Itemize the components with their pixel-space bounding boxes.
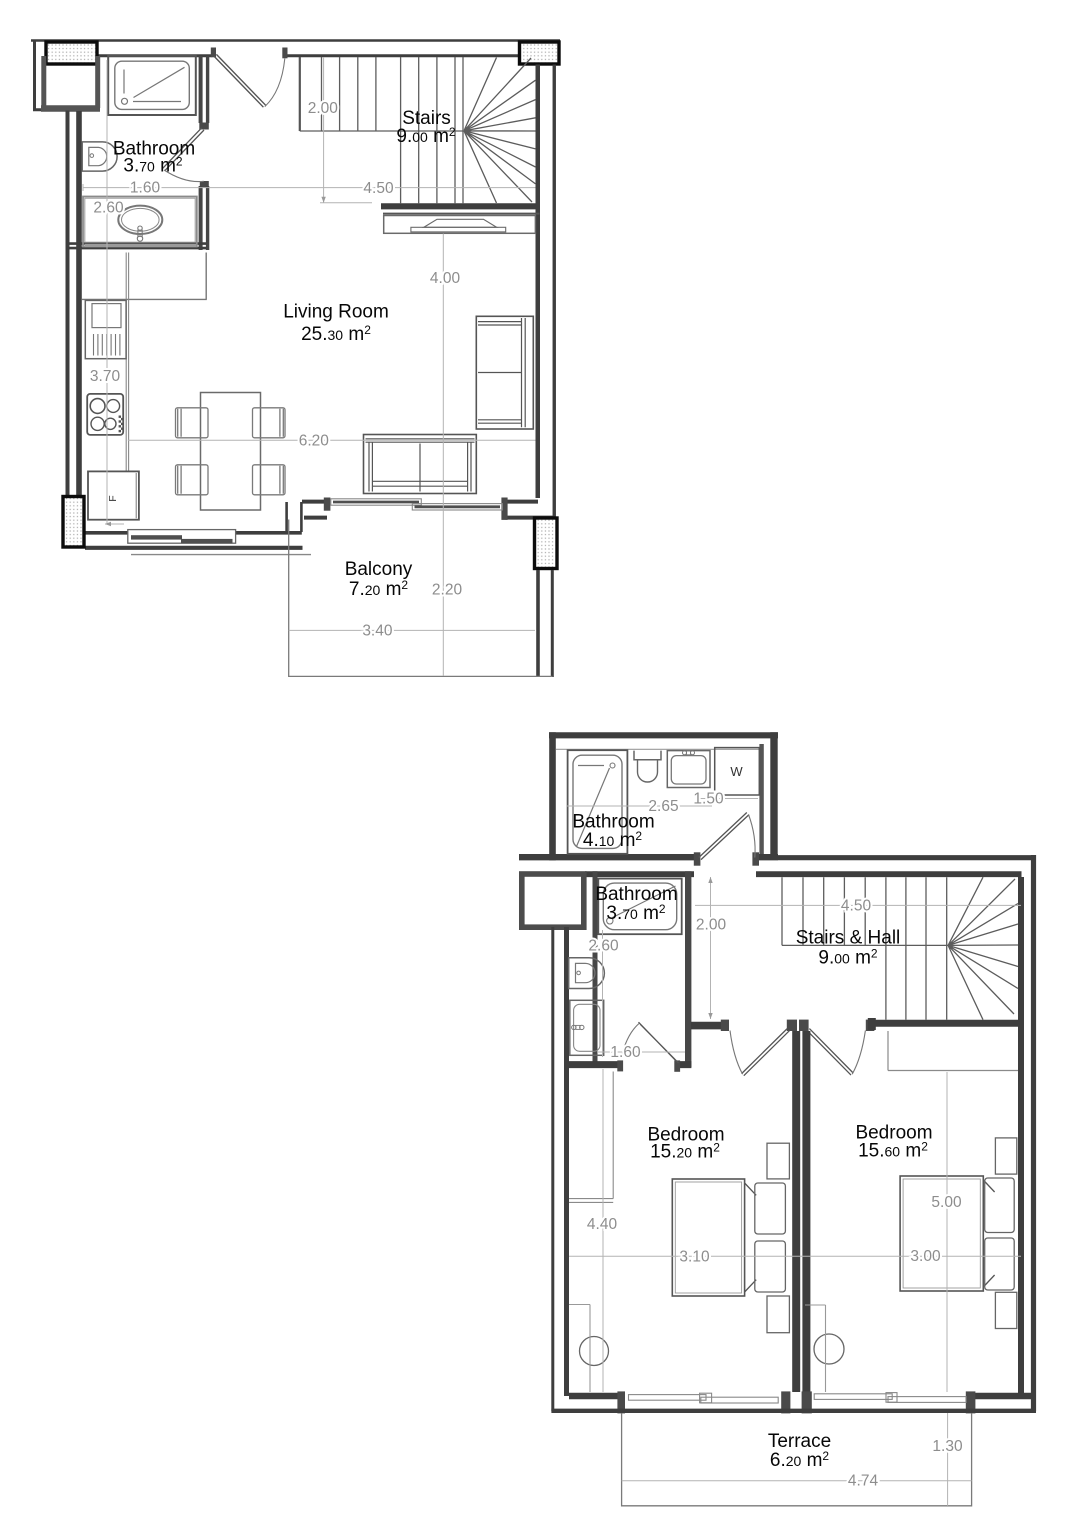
svg-text:15.20 m2: 15.20 m2 xyxy=(650,1141,720,1163)
svg-text:2.65: 2.65 xyxy=(648,798,678,815)
svg-text:F: F xyxy=(107,495,119,501)
svg-text:1.50: 1.50 xyxy=(693,791,724,808)
svg-text:4.74: 4.74 xyxy=(848,1473,879,1490)
svg-text:7.20 m2: 7.20 m2 xyxy=(349,578,409,600)
svg-text:25.30 m2: 25.30 m2 xyxy=(301,323,371,345)
svg-text:9.00 m2: 9.00 m2 xyxy=(818,947,878,969)
svg-text:5.00: 5.00 xyxy=(931,1194,962,1211)
svg-text:4.10 m2: 4.10 m2 xyxy=(583,829,643,851)
svg-text:3.70 m2: 3.70 m2 xyxy=(123,155,183,177)
svg-text:2.00: 2.00 xyxy=(308,100,339,117)
svg-text:1.60: 1.60 xyxy=(130,180,161,197)
svg-text:3.40: 3.40 xyxy=(362,623,393,640)
svg-text:6.20 m2: 6.20 m2 xyxy=(770,1449,830,1471)
svg-text:2.60: 2.60 xyxy=(588,938,619,955)
svg-text:4.50: 4.50 xyxy=(841,897,872,914)
svg-text:Balcony: Balcony xyxy=(345,559,413,580)
svg-text:1.60: 1.60 xyxy=(610,1044,641,1061)
svg-text:4.50: 4.50 xyxy=(363,180,394,197)
svg-text:1.30: 1.30 xyxy=(932,1438,963,1455)
svg-text:3.00: 3.00 xyxy=(910,1248,941,1265)
svg-text:3.10: 3.10 xyxy=(679,1248,710,1265)
svg-text:2.20: 2.20 xyxy=(432,582,463,599)
svg-text:9.00 m2: 9.00 m2 xyxy=(396,125,456,147)
svg-text:2.60: 2.60 xyxy=(93,200,124,217)
svg-text:4.00: 4.00 xyxy=(430,270,461,287)
svg-text:4.40: 4.40 xyxy=(587,1216,618,1233)
svg-text:6.20: 6.20 xyxy=(299,433,330,450)
svg-text:2.00: 2.00 xyxy=(696,917,727,934)
svg-text:3.70: 3.70 xyxy=(90,368,121,385)
svg-text:15.60 m2: 15.60 m2 xyxy=(858,1140,928,1162)
svg-text:Stairs & Hall: Stairs & Hall xyxy=(796,928,901,949)
svg-text:3.70 m2: 3.70 m2 xyxy=(606,902,666,924)
svg-text:W: W xyxy=(730,764,743,779)
svg-text:Living Room: Living Room xyxy=(283,302,389,323)
